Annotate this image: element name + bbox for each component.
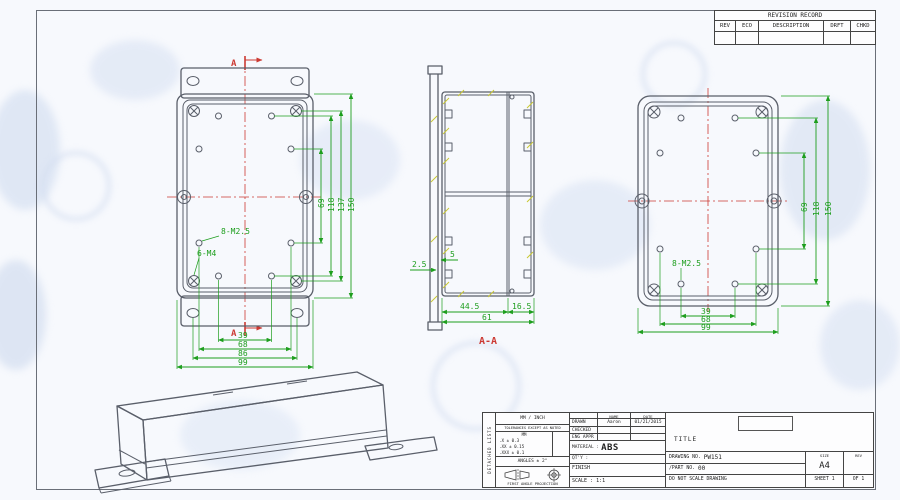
rev-box: REV: [844, 452, 873, 474]
drawing-no-label: DRAWING NO.: [669, 455, 701, 460]
back-view: 8-M2.5 69 118 150 39 68 99: [626, 86, 874, 338]
dim-99-back: 99: [701, 323, 711, 332]
section-label-bottom: A: [231, 329, 237, 339]
size-header: SIZE: [806, 452, 843, 459]
front-hole-labels: 8-M2.5 6-M4: [194, 227, 250, 275]
approval-block: NAME DATE DRAWN Aaron 01/21/2015 CHECKED…: [570, 413, 666, 487]
back-hole-label: 8-M2.5: [672, 259, 701, 280]
dim-39: 39: [238, 331, 248, 340]
drawn-label: DRAWN: [570, 419, 598, 426]
scale-row: SCALE : 1:1: [570, 477, 665, 489]
rev-col-header: REV: [715, 21, 736, 31]
title-block: DETACHED LISTS MM / INCH TOLERANCES EXCE…: [482, 412, 874, 488]
dim-150: 150: [347, 197, 356, 212]
dim-69-back: 69: [800, 202, 809, 212]
isometric-view: [65, 358, 445, 493]
title-label: TITLE: [674, 436, 697, 443]
angles-tolerance: ANGLES ± 2°: [496, 457, 569, 467]
dim-2-5: 2.5: [412, 260, 427, 269]
drft-col-header: DRFT: [824, 21, 851, 31]
dim-150-back: 150: [824, 201, 833, 216]
tolerance-row: .XXX ± 0.1: [496, 450, 552, 456]
checked-label: CHECKED: [570, 427, 598, 433]
sheet-number: SHEET 1: [806, 475, 844, 487]
size-value: A4: [806, 459, 843, 473]
part-no-value: 00: [698, 465, 705, 472]
back-centerlines: [628, 88, 788, 312]
title-area: TITLE: [666, 413, 873, 452]
section-outline: [428, 66, 534, 330]
size-box: SIZE A4: [806, 452, 844, 474]
rev-header: REV: [844, 452, 873, 459]
iso-outline: [95, 372, 437, 493]
name-header: NAME: [598, 413, 631, 418]
dim-68: 68: [238, 340, 248, 349]
finish-row: FINISH: [570, 464, 665, 477]
dim-61: 61: [482, 313, 492, 322]
drawing-sheet: A A: [0, 0, 900, 500]
section-title: A-A: [479, 336, 497, 347]
sheet-of: OF 1: [844, 475, 873, 487]
revision-empty-row: [715, 32, 875, 44]
label-8-m25: 8-M2.5: [221, 227, 250, 236]
description-col-header: DESCRIPTION: [759, 21, 824, 31]
projection-label: FIRST ANGLE PROJECTION: [496, 481, 569, 486]
section-view: 5 2.5 44.5 16.5 61 A-A: [408, 52, 543, 372]
tolerance-table: MM .X ± 0.3 .XX ± 0.15 .XXX ± 0.1: [496, 432, 569, 457]
tolerance-inch-column: [553, 432, 569, 456]
chkd-col-header: CHKD: [851, 21, 875, 31]
drawing-no-value: PW151: [704, 454, 722, 461]
revision-table-title: REVISION RECORD: [715, 11, 875, 21]
label-8-m25-back: 8-M2.5: [672, 259, 701, 268]
first-angle-cone-icon: [504, 469, 530, 481]
first-angle-target-icon: [547, 468, 561, 482]
eng-appr-label: ENG APPR: [570, 434, 598, 440]
section-dims: 5 2.5 44.5 16.5 61: [410, 250, 534, 324]
dim-118: 118: [327, 197, 336, 212]
logo-box: [738, 416, 793, 431]
part-no-label: /PART NO.: [669, 466, 695, 471]
dim-44-5: 44.5: [460, 302, 479, 311]
dim-69: 69: [317, 198, 326, 208]
drawn-date: 01/21/2015: [631, 419, 665, 426]
title-drawing-block: TITLE DRAWING NO. PW151 /PART NO. 00 SIZ…: [666, 413, 873, 487]
dim-16-5: 16.5: [512, 302, 531, 311]
eco-col-header: ECO: [736, 21, 759, 31]
title-block-side-strip: DETACHED LISTS: [483, 413, 496, 487]
front-dims-right: 69 118 137 150: [274, 94, 356, 298]
material-label: MATERIAL :: [572, 445, 599, 450]
drawn-name: Aaron: [598, 419, 631, 426]
dim-118-back: 118: [812, 201, 821, 216]
qty-row: QT'Y :: [570, 455, 665, 464]
tolerances-title: TOLERANCES EXCEPT AS NOTED: [496, 425, 569, 432]
do-not-scale-note: DO NOT SCALE DRAWING: [666, 475, 806, 487]
dim-86: 86: [238, 349, 248, 358]
side-strip-label: DETACHED LISTS: [487, 426, 492, 474]
revision-table: REVISION RECORD REV ECO DESCRIPTION DRFT…: [714, 10, 876, 45]
label-6-m4: 6-M4: [197, 249, 216, 258]
material-row: MATERIAL : ABS: [570, 441, 665, 455]
tolerance-block: MM / INCH TOLERANCES EXCEPT AS NOTED MM …: [496, 413, 570, 487]
projection-cell: FIRST ANGLE PROJECTION: [496, 467, 569, 487]
dim-5: 5: [450, 250, 455, 259]
front-view: A A: [163, 50, 368, 375]
date-header: DATE: [631, 413, 665, 418]
material-value: ABS: [601, 443, 619, 453]
dim-137: 137: [337, 197, 346, 212]
units-row: MM / INCH: [496, 413, 569, 425]
